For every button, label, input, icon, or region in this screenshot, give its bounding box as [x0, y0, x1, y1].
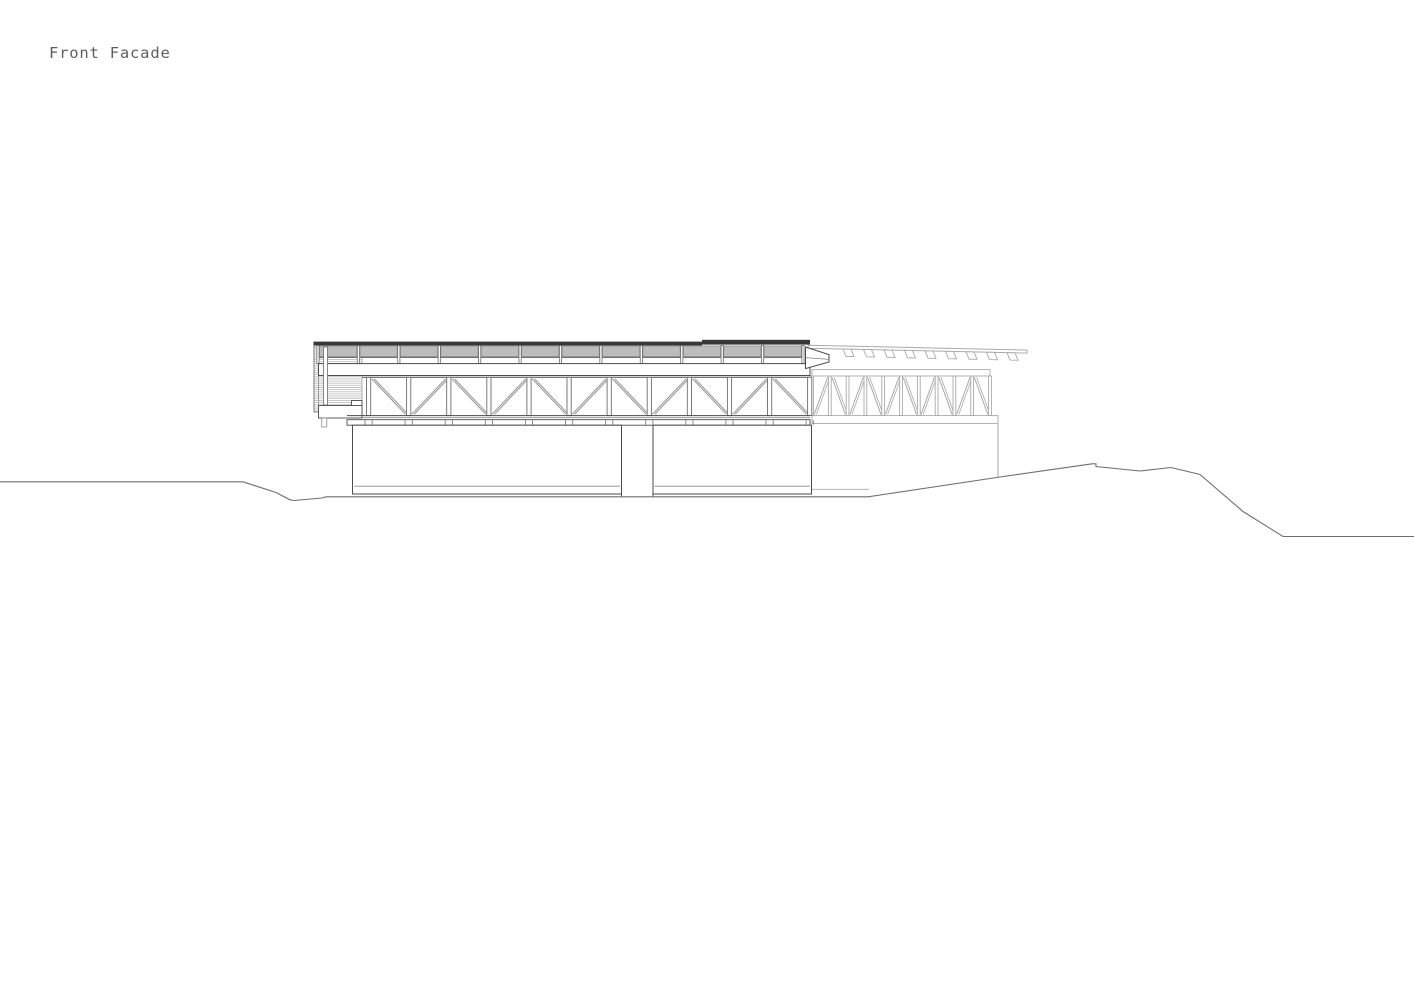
rear-truss-post: [846, 376, 849, 416]
rear-rafter-tail: [884, 350, 895, 358]
front-truss-post: [808, 377, 812, 415]
rear-truss-post: [935, 376, 938, 416]
front-truss-diagonal: [535, 379, 569, 414]
front-truss-diagonal: [495, 379, 529, 414]
rear-truss-diagonal: [868, 377, 881, 414]
fascia-beam: [319, 364, 811, 376]
bench-leg: [322, 418, 327, 427]
rear-roof-slab: [808, 345, 1027, 353]
front-truss-diagonal: [412, 379, 446, 414]
rear-rafter-tail: [864, 349, 875, 357]
front-truss-post: [647, 377, 651, 415]
elevation-drawing: [0, 0, 1414, 1000]
front-truss-diagonal: [612, 379, 646, 414]
rear-rafter-tail: [987, 352, 998, 360]
clerestory-panel: [481, 346, 518, 358]
front-truss-post: [367, 377, 371, 415]
front-truss-post: [487, 377, 491, 415]
front-truss-post: [768, 377, 772, 415]
clerestory-panel: [562, 346, 599, 358]
front-truss-post: [447, 377, 451, 415]
front-truss-diagonal: [492, 379, 526, 414]
rear-truss-diagonal: [977, 377, 990, 414]
front-wing: [314, 340, 830, 497]
clerestory-post: [357, 345, 359, 363]
front-truss-diagonal: [532, 379, 566, 414]
front-truss-post: [687, 377, 691, 415]
rear-rafter-tail: [946, 351, 957, 359]
front-roof-slab-left: [314, 342, 703, 346]
left-end-post: [324, 347, 328, 405]
podium-wall-right: [653, 425, 812, 494]
clerestory-post: [559, 345, 561, 363]
front-truss-post: [727, 377, 731, 415]
front-truss-diagonal: [615, 379, 649, 414]
front-truss-diagonal: [693, 379, 727, 414]
rear-truss-post: [900, 376, 903, 416]
rear-truss-post: [882, 376, 885, 416]
clerestory-post: [519, 345, 521, 363]
rear-truss-post: [989, 376, 992, 416]
rear-truss-diagonal: [903, 377, 916, 414]
front-truss-diagonal: [775, 379, 809, 414]
rear-truss-diagonal: [959, 377, 972, 414]
front-truss-post: [527, 377, 531, 415]
rear-truss-post: [953, 376, 956, 416]
rear-truss-diagonal: [816, 377, 829, 414]
clerestory-post: [681, 345, 683, 363]
front-truss-post: [607, 377, 611, 415]
front-truss-diagonal: [452, 379, 486, 414]
rear-truss-diagonal: [957, 377, 970, 414]
rear-rafter-tail: [925, 351, 936, 359]
rear-truss-diagonal: [850, 377, 863, 414]
clerestory-panel: [683, 346, 720, 358]
clerestory-panel: [400, 346, 437, 358]
clerestory-panel: [522, 346, 559, 358]
rear-truss-diagonal: [923, 377, 936, 414]
rear-truss-diagonal: [974, 377, 987, 414]
front-truss-diagonal: [572, 379, 606, 414]
front-truss-diagonal: [733, 379, 767, 414]
front-truss-diagonal: [655, 379, 689, 414]
front-truss-diagonal: [414, 379, 448, 414]
front-truss-diagonal: [372, 379, 406, 414]
rear-truss-post: [864, 376, 867, 416]
clerestory-panel: [764, 346, 801, 358]
clerestory-post: [317, 345, 319, 363]
floor-rail-band: [347, 420, 810, 426]
clerestory-post: [479, 345, 481, 363]
rear-truss-post: [917, 376, 920, 416]
rear-truss-diagonal: [852, 377, 865, 414]
podium-wall-left: [353, 425, 622, 494]
front-truss-diagonal: [575, 379, 609, 414]
front-truss-post: [567, 377, 571, 415]
rear-truss-post: [828, 376, 831, 416]
clerestory-post: [438, 345, 440, 363]
front-truss-diagonal: [454, 379, 488, 414]
rear-truss-top-chord: [812, 370, 990, 376]
rear-truss-diagonal: [888, 377, 901, 414]
clerestory-post: [802, 345, 804, 363]
rear-truss-diagonal: [834, 377, 847, 414]
rear-truss-diagonal: [941, 377, 954, 414]
clerestory-panel: [360, 346, 397, 358]
clerestory-post: [761, 345, 763, 363]
rear-podium-face: [812, 423, 998, 489]
front-truss-diagonal: [653, 379, 687, 414]
rear-rafter-tail: [1007, 353, 1018, 361]
front-truss-diagonal: [735, 379, 769, 414]
clerestory-post: [640, 345, 642, 363]
front-truss-post: [407, 377, 411, 415]
rear-rafter-tail: [966, 352, 977, 360]
rear-truss-bottom-chord: [812, 416, 998, 424]
rear-rafter-tail: [905, 350, 916, 358]
clerestory-panel: [643, 346, 680, 358]
rear-truss-diagonal: [921, 377, 934, 414]
rear-truss-diagonal: [885, 377, 898, 414]
rear-rafter-tail: [843, 349, 854, 357]
clerestory-post: [600, 345, 602, 363]
clerestory-panel: [603, 346, 640, 358]
front-roof-slab-right: [702, 340, 810, 345]
rear-truss-diagonal: [814, 377, 827, 414]
front-truss-diagonal: [773, 379, 807, 414]
rear-wing: [808, 345, 1027, 489]
clerestory-post: [721, 345, 723, 363]
clerestory-panel: [724, 346, 761, 358]
front-truss-diagonal: [374, 379, 408, 414]
front-truss-diagonal: [695, 379, 729, 414]
bench-step-lower: [319, 406, 363, 419]
rear-truss-diagonal: [905, 377, 918, 414]
clerestory-panel: [441, 346, 478, 358]
rear-truss-diagonal: [870, 377, 883, 414]
rear-truss-diagonal: [939, 377, 952, 414]
rear-truss-diagonal: [832, 377, 845, 414]
rear-truss-post: [971, 376, 974, 416]
clerestory-post: [398, 345, 400, 363]
